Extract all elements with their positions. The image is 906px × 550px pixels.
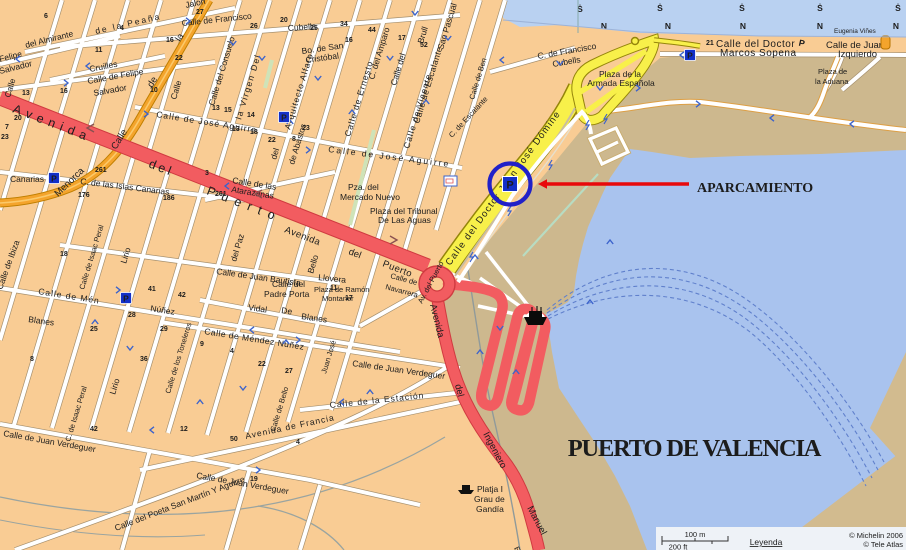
svg-text:25: 25 [310,25,318,32]
svg-text:Marcos Sopena: Marcos Sopena [720,48,797,59]
svg-text:P: P [281,113,287,123]
svg-text:12: 12 [180,426,188,433]
svg-text:19: 19 [250,476,258,483]
svg-text:Izquierdo: Izquierdo [838,49,877,60]
svg-text:28: 28 [128,312,136,319]
svg-text:N: N [665,21,671,31]
svg-text:23: 23 [1,134,9,141]
svg-text:8: 8 [292,136,296,143]
svg-text:200 ft: 200 ft [669,543,689,550]
svg-text:22: 22 [268,137,276,144]
svg-text:© Tele Atlas: © Tele Atlas [863,540,903,549]
svg-text:13: 13 [232,126,240,133]
svg-text:De Las Aguas: De Las Aguas [378,215,431,225]
svg-text:52: 52 [420,42,428,49]
svg-text:PUERTO DE VALENCIA: PUERTO DE VALENCIA [568,435,822,462]
svg-text:6: 6 [44,13,48,20]
svg-text:20: 20 [280,17,288,24]
svg-text:Plaza de Ramón: Plaza de Ramón [314,285,369,294]
svg-text:8: 8 [30,356,34,363]
svg-text:22: 22 [175,55,183,62]
svg-text:44: 44 [368,27,376,34]
svg-text:Grau de: Grau de [474,494,505,504]
svg-text:11: 11 [95,47,103,54]
svg-text:© Michelin 2006: © Michelin 2006 [849,531,903,540]
svg-text:36: 36 [140,356,148,363]
svg-text:21: 21 [706,40,714,47]
svg-text:18: 18 [250,129,258,136]
svg-text:100 m: 100 m [685,530,706,539]
svg-text:9: 9 [200,341,204,348]
svg-text:la Aduana: la Aduana [815,77,849,86]
svg-text:17: 17 [345,295,353,302]
svg-text:Canarias: Canarias [10,174,44,184]
svg-text:Platja I: Platja I [477,484,503,494]
svg-text:7: 7 [5,124,9,131]
svg-text:186: 186 [163,195,175,202]
svg-text:13: 13 [212,105,220,112]
svg-text:20: 20 [14,115,22,122]
svg-text:15: 15 [224,107,232,114]
svg-text:P: P [506,180,513,192]
svg-text:176: 176 [78,192,90,199]
svg-text:261: 261 [215,191,227,198]
svg-text:4: 4 [120,25,124,32]
svg-text:4: 4 [230,348,234,355]
svg-text:29: 29 [160,326,168,333]
svg-text:Leyenda: Leyenda [750,537,783,547]
svg-text:N: N [893,21,899,31]
svg-text:18: 18 [60,251,68,258]
svg-text:APARCAMIENTO: APARCAMIENTO [697,181,813,196]
svg-text:N: N [740,21,746,31]
svg-text:N: N [817,21,823,31]
svg-text:Gandía: Gandía [476,504,504,514]
svg-text:Pza. del: Pza. del [348,182,379,192]
svg-text:10: 10 [150,87,158,94]
svg-text:50: 50 [230,436,238,443]
svg-text:11: 11 [330,285,338,292]
svg-text:Calle del: Calle del [272,279,305,289]
svg-text:Ṡ: Ṡ [895,3,901,13]
svg-text:P: P [123,294,129,304]
svg-text:Mercado Nuevo: Mercado Nuevo [340,192,400,202]
svg-text:Ṡ: Ṡ [817,3,823,13]
svg-text:42: 42 [178,292,186,299]
svg-text:42: 42 [90,426,98,433]
svg-text:4: 4 [296,439,300,446]
svg-text:261: 261 [95,167,107,174]
svg-text:41: 41 [148,286,156,293]
svg-text:17: 17 [398,35,406,42]
svg-text:P: P [687,51,693,61]
svg-text:16: 16 [60,88,68,95]
svg-text:22: 22 [258,361,266,368]
svg-text:16: 16 [166,37,174,44]
svg-text:Padre Porta: Padre Porta [264,289,310,299]
svg-text:De: De [281,305,293,316]
svg-text:Ṡ: Ṡ [657,3,663,13]
svg-text:34: 34 [340,21,348,28]
svg-text:27: 27 [196,9,204,16]
svg-text:16: 16 [345,37,353,44]
svg-text:P: P [51,174,57,184]
svg-text:3: 3 [205,170,209,177]
svg-text:Eugenia Viñes: Eugenia Viñes [834,28,877,35]
svg-text:27: 27 [285,368,293,375]
svg-text:Plaza de: Plaza de [818,67,847,76]
svg-text:23: 23 [302,125,310,132]
svg-text:26: 26 [250,23,258,30]
svg-text:13: 13 [22,90,30,97]
svg-text:Ṡ: Ṡ [739,3,745,13]
svg-text:14: 14 [247,112,255,119]
svg-text:25: 25 [90,326,98,333]
